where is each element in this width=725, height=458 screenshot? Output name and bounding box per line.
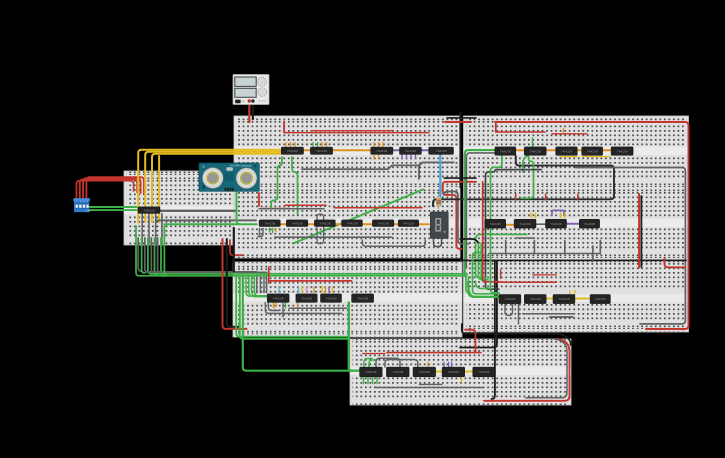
svg-text:74HC08: 74HC08 — [490, 222, 501, 226]
svg-text:74HC08: 74HC08 — [478, 370, 489, 374]
svg-text:74HC08: 74HC08 — [530, 149, 541, 153]
svg-text:74HC08: 74HC08 — [346, 221, 357, 225]
svg-text:74HC08: 74HC08 — [436, 149, 447, 153]
svg-text:74HC08: 74HC08 — [561, 149, 572, 153]
svg-text:74HC08: 74HC08 — [405, 149, 416, 153]
svg-text:74HC08: 74HC08 — [403, 221, 414, 225]
svg-text:74HC08: 74HC08 — [448, 370, 459, 374]
svg-text:74HC08: 74HC08 — [392, 370, 403, 374]
svg-text:74HC08: 74HC08 — [550, 222, 561, 226]
svg-text:74HC08: 74HC08 — [500, 149, 511, 153]
svg-text:74HC08: 74HC08 — [378, 221, 389, 225]
svg-text:74HC08: 74HC08 — [419, 370, 430, 374]
svg-text:74HC08: 74HC08 — [325, 296, 336, 300]
svg-text:74HC08: 74HC08 — [519, 222, 530, 226]
svg-text:74HC08: 74HC08 — [292, 221, 303, 225]
svg-text:74HC08: 74HC08 — [357, 296, 368, 300]
svg-text:74HC08: 74HC08 — [587, 149, 598, 153]
svg-text:74HC08: 74HC08 — [504, 297, 515, 301]
svg-text:ON: ON — [87, 210, 91, 213]
svg-text:74HC08: 74HC08 — [376, 149, 387, 153]
svg-text:74HC08: 74HC08 — [301, 296, 312, 300]
svg-text:74HC08: 74HC08 — [273, 296, 284, 300]
svg-text:74HC08: 74HC08 — [584, 222, 595, 226]
svg-text:74HC08: 74HC08 — [287, 149, 298, 153]
svg-text:74HC08: 74HC08 — [316, 149, 327, 153]
svg-text:HC-SR04 Ultrasonic: HC-SR04 Ultrasonic — [230, 165, 252, 168]
svg-text:74HC08: 74HC08 — [143, 208, 154, 212]
svg-text:74HC08: 74HC08 — [264, 221, 275, 225]
svg-text:74HC08: 74HC08 — [558, 297, 569, 301]
svg-text:74HC08: 74HC08 — [617, 149, 628, 153]
svg-text:74HC08: 74HC08 — [319, 221, 330, 225]
svg-text:74HC08: 74HC08 — [595, 297, 606, 301]
svg-text:74HC08: 74HC08 — [530, 297, 541, 301]
svg-text:74HC08: 74HC08 — [365, 370, 376, 374]
